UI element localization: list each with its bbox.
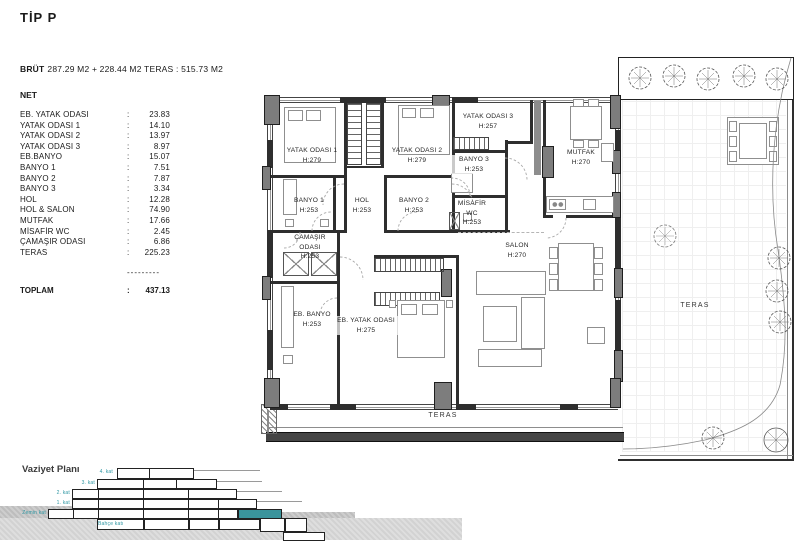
room-height: H:257 <box>446 122 530 132</box>
room-label-salon: SALON H:270 <box>488 241 546 260</box>
tree-branches <box>765 429 787 451</box>
floor-label-zemin: Zemin kat <box>12 510 46 516</box>
floor-divider <box>143 510 144 518</box>
room-height: H:253 <box>283 252 337 262</box>
room-name: EB. YATAK ODASI <box>326 316 406 326</box>
site-plan-title: Vaziyet Planı <box>22 464 80 475</box>
floor-divider <box>149 469 150 478</box>
floor-divider <box>73 510 74 518</box>
room-name: BANYO 3 <box>443 155 505 165</box>
floor-divider <box>143 490 144 498</box>
room-label-hol: HOL H:253 <box>341 196 383 215</box>
room-name: MİSAFİR WC <box>452 199 492 218</box>
room-height: H:275 <box>326 326 406 336</box>
drawing-sheet: { "title": "TİP P", "summary": { "brut_l… <box>0 0 800 542</box>
room-height: H:253 <box>341 206 383 216</box>
building-floor <box>72 499 257 509</box>
floor-divider <box>176 480 177 488</box>
floor-divider <box>218 500 219 508</box>
floor-label-3: 3. kat <box>64 480 95 486</box>
room-label-mutfak: MUTFAK H:270 <box>545 148 617 167</box>
room-name: MUTFAK <box>545 148 617 158</box>
terrace-label-south: TERAS <box>408 412 478 419</box>
building-floor <box>117 468 194 479</box>
building-annex <box>283 532 325 541</box>
room-name: HOL <box>341 196 383 206</box>
room-height: H:270 <box>488 251 546 261</box>
room-label-yatak-odasi-3: YATAK ODASI 3 H:257 <box>446 112 530 131</box>
room-name: SALON <box>488 241 546 251</box>
terrace-label-east: TERAS <box>660 302 730 309</box>
floor-label-2: 2. kat <box>40 490 70 496</box>
floor-divider <box>143 520 145 529</box>
room-name: YATAK ODASI 1 <box>277 146 347 156</box>
room-height: H:253 <box>452 218 492 228</box>
floor-divider <box>218 520 220 529</box>
floor-label-1: 1. kat <box>40 500 70 506</box>
room-name: ÇAMAŞIR ODASI <box>283 233 337 252</box>
room-label-misafir-wc: MİSAFİR WC H:253 <box>452 199 492 228</box>
floor-divider <box>188 510 189 518</box>
floor-divider <box>218 510 219 518</box>
floor-divider <box>188 490 189 498</box>
plan-overlay <box>0 0 800 542</box>
building-floor <box>97 479 217 489</box>
garden-path-line <box>623 58 791 449</box>
floor-label-bahce: Bahçe katı <box>98 521 142 527</box>
room-name: BANYO 1 <box>283 196 335 206</box>
roof-line <box>257 501 302 502</box>
room-height: H:253 <box>388 206 440 216</box>
room-name: BANYO 2 <box>388 196 440 206</box>
room-label-yatak-odasi-1: YATAK ODASI 1 H:279 <box>277 146 347 165</box>
floor-divider <box>188 500 189 508</box>
roof-line <box>237 491 282 492</box>
room-label-banyo-1: BANYO 1 H:253 <box>283 196 335 215</box>
room-label-banyo-2: BANYO 2 H:253 <box>388 196 440 215</box>
building-annex <box>260 518 307 532</box>
room-name: YATAK ODASI 3 <box>446 112 530 122</box>
room-height: H:253 <box>443 165 505 175</box>
building-floor <box>48 509 238 519</box>
roof-line <box>193 470 260 471</box>
room-height: H:253 <box>283 206 335 216</box>
floor-divider <box>143 500 144 508</box>
building-floor <box>72 489 237 499</box>
room-label-banyo-3: BANYO 3 H:253 <box>443 155 505 174</box>
floor-label-4: 4. kat <box>85 469 113 475</box>
floor-divider <box>98 510 99 518</box>
floor-divider <box>98 490 99 498</box>
room-height: H:270 <box>545 158 617 168</box>
room-label-eb-yatak-odasi: EB. YATAK ODASI H:275 <box>326 316 406 335</box>
floor-divider <box>143 480 144 488</box>
room-height: H:279 <box>277 156 347 166</box>
floor-divider <box>284 519 286 531</box>
floor-divider <box>188 520 190 529</box>
roof-line <box>217 481 262 482</box>
room-label-camasir-odasi: ÇAMAŞIR ODASI H:253 <box>283 233 337 262</box>
floor-divider <box>98 500 99 508</box>
